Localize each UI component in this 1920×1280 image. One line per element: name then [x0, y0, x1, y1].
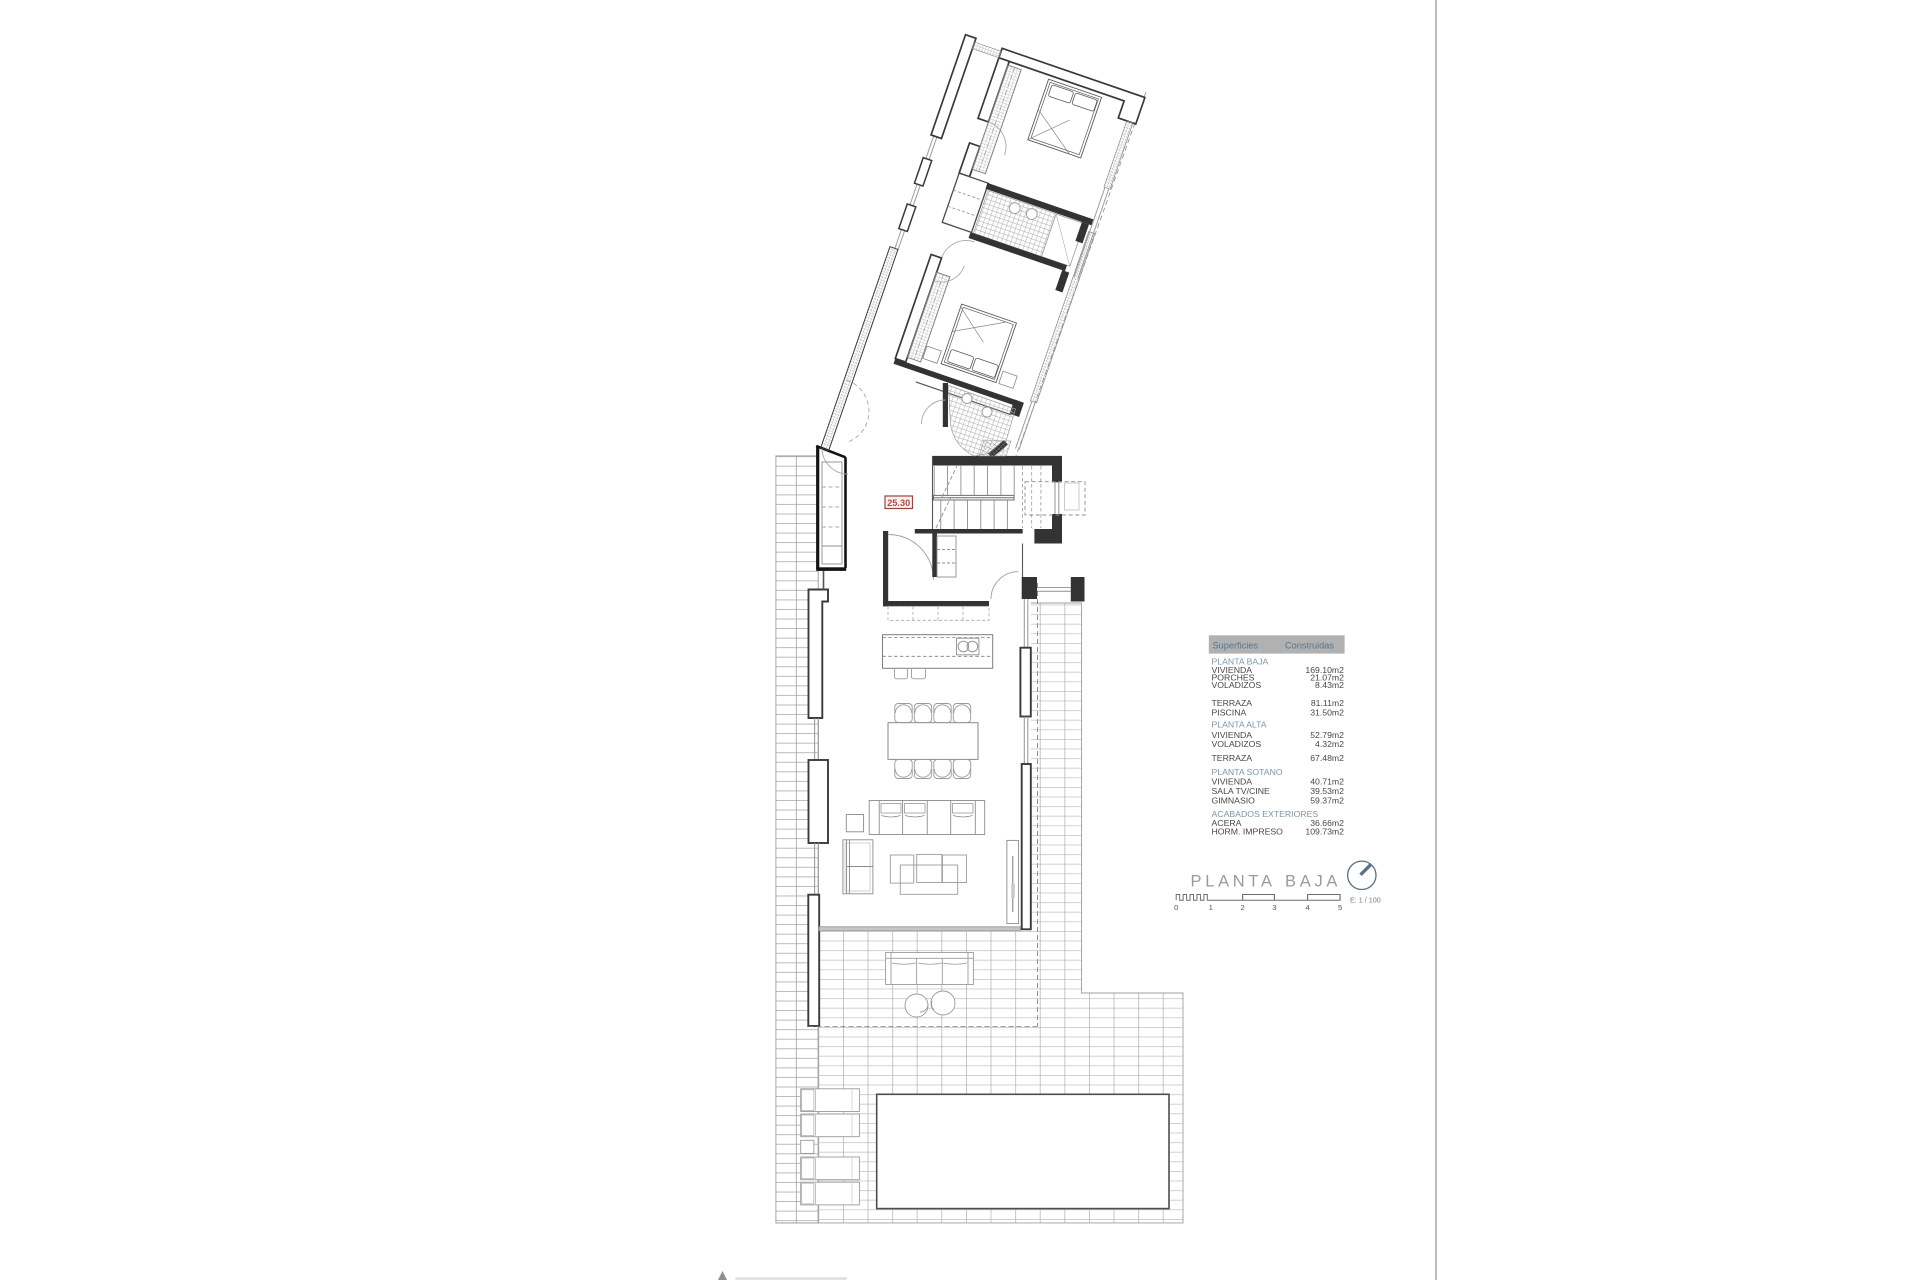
svg-text:Superficies: Superficies — [1213, 640, 1259, 650]
svg-text:67.48m2: 67.48m2 — [1310, 753, 1344, 763]
svg-text:81.11m2: 81.11m2 — [1311, 698, 1344, 708]
svg-text:PISCINA: PISCINA — [1212, 708, 1247, 718]
svg-text:PLANTA BAJA: PLANTA BAJA — [1191, 873, 1342, 891]
svg-text:5: 5 — [1338, 903, 1342, 912]
svg-text:PLANTA ALTA: PLANTA ALTA — [1212, 719, 1267, 729]
svg-text:25.30: 25.30 — [887, 498, 910, 508]
svg-text:TERRAZA: TERRAZA — [1212, 753, 1253, 763]
svg-text:40.71m2: 40.71m2 — [1310, 777, 1344, 787]
svg-text:4: 4 — [1305, 903, 1309, 912]
svg-text:59.37m2: 59.37m2 — [1310, 796, 1344, 806]
svg-text:2: 2 — [1240, 903, 1244, 912]
svg-text:VOLADIZOS: VOLADIZOS — [1212, 739, 1262, 749]
svg-text:1: 1 — [1209, 903, 1213, 912]
svg-text:VOLADIZOS: VOLADIZOS — [1212, 680, 1262, 690]
svg-text:Construidas: Construidas — [1285, 640, 1334, 650]
svg-text:VIVIENDA: VIVIENDA — [1212, 777, 1253, 787]
svg-text:TERRAZA: TERRAZA — [1212, 698, 1253, 708]
svg-text:31.50m2: 31.50m2 — [1310, 708, 1344, 718]
svg-text:3: 3 — [1272, 903, 1276, 912]
svg-text:GIMNASIO: GIMNASIO — [1212, 796, 1256, 806]
svg-text:HORM. IMPRESO: HORM. IMPRESO — [1212, 827, 1284, 837]
svg-text:8.43m2: 8.43m2 — [1315, 680, 1344, 690]
svg-text:E: 1 / 100: E: 1 / 100 — [1350, 896, 1381, 905]
svg-text:4.32m2: 4.32m2 — [1315, 739, 1344, 749]
svg-text:109.73m2: 109.73m2 — [1305, 827, 1344, 837]
svg-text:0: 0 — [1174, 903, 1178, 912]
